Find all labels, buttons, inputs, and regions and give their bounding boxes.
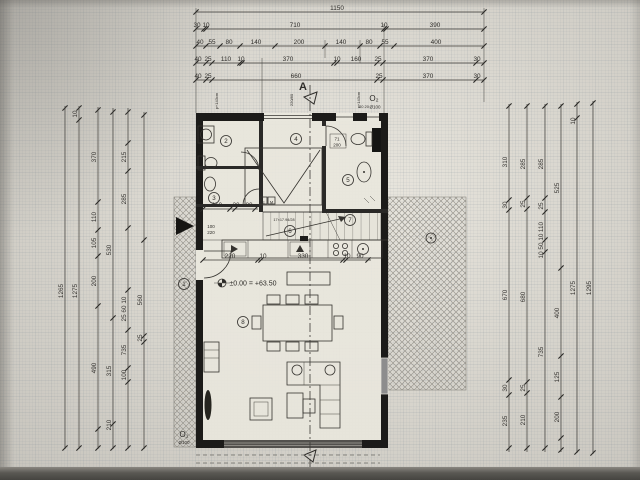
- photo-vignette: [0, 0, 640, 480]
- desk-edge-shadow: [0, 467, 640, 480]
- photo-of-floor-plan-sheet: 1150301071010390405580140200140805540040…: [0, 0, 640, 480]
